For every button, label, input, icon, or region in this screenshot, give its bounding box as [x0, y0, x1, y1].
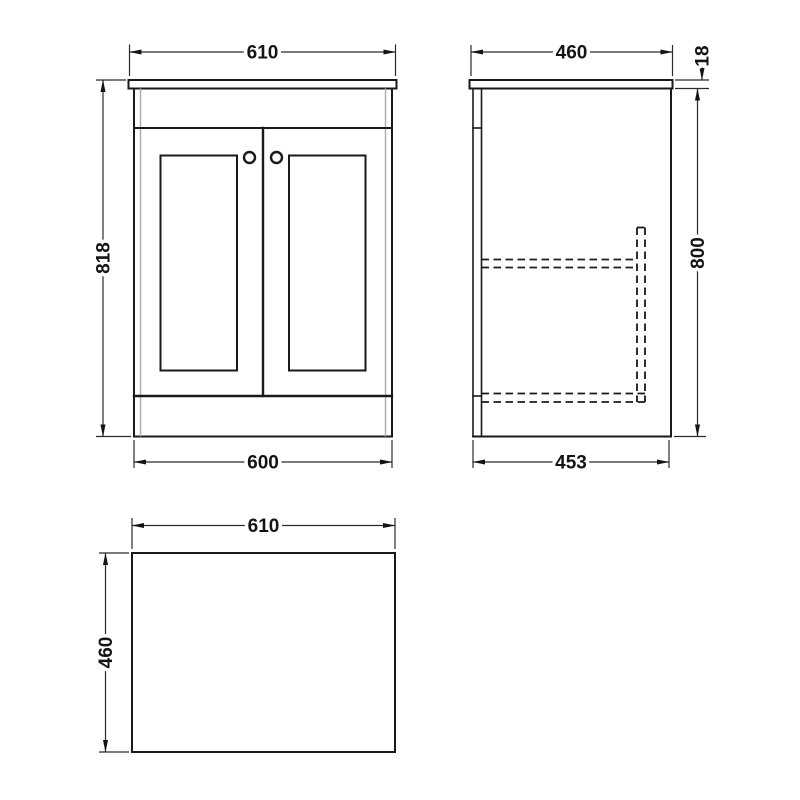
side-worktop — [470, 80, 673, 89]
top-dim-width-label: 610 — [248, 516, 280, 537]
side-dim-depth-top-label: 460 — [556, 43, 588, 64]
side-view: 460 18 800 453 — [470, 43, 714, 474]
front-dim-width-bottom-label: 600 — [247, 453, 279, 474]
side-dim-worktop-thickness: 18 — [675, 45, 714, 88]
side-dim-body-height-label: 800 — [688, 237, 709, 269]
top-dim-depth-label: 460 — [96, 637, 117, 669]
side-dim-depth-top: 460 — [471, 43, 673, 77]
front-dim-height-label: 818 — [94, 242, 115, 274]
top-worktop-outline — [132, 553, 395, 752]
front-dim-width-bottom: 600 — [134, 440, 392, 474]
front-dim-width-top: 610 — [130, 43, 396, 77]
front-worktop — [129, 80, 397, 89]
door-knob-right — [271, 152, 282, 163]
technical-drawing-page: 610 818 600 — [0, 0, 800, 800]
top-dim-width: 610 — [132, 516, 395, 549]
top-view: 610 460 — [96, 516, 395, 752]
side-dim-depth-bottom: 453 — [473, 440, 669, 474]
front-dim-width-top-label: 610 — [247, 43, 279, 64]
door-knob-left — [244, 152, 255, 163]
front-left-door-panel — [161, 156, 238, 371]
front-dim-height: 818 — [94, 80, 132, 437]
front-view: 610 818 600 — [94, 43, 397, 474]
front-right-door-panel — [289, 156, 366, 371]
vanity-unit-drawing: 610 818 600 — [0, 0, 800, 800]
side-dim-worktop-thickness-label: 18 — [693, 45, 714, 66]
top-dim-depth: 460 — [96, 553, 129, 752]
side-dim-depth-bottom-label: 453 — [555, 453, 587, 474]
side-dim-body-height: 800 — [674, 89, 709, 437]
